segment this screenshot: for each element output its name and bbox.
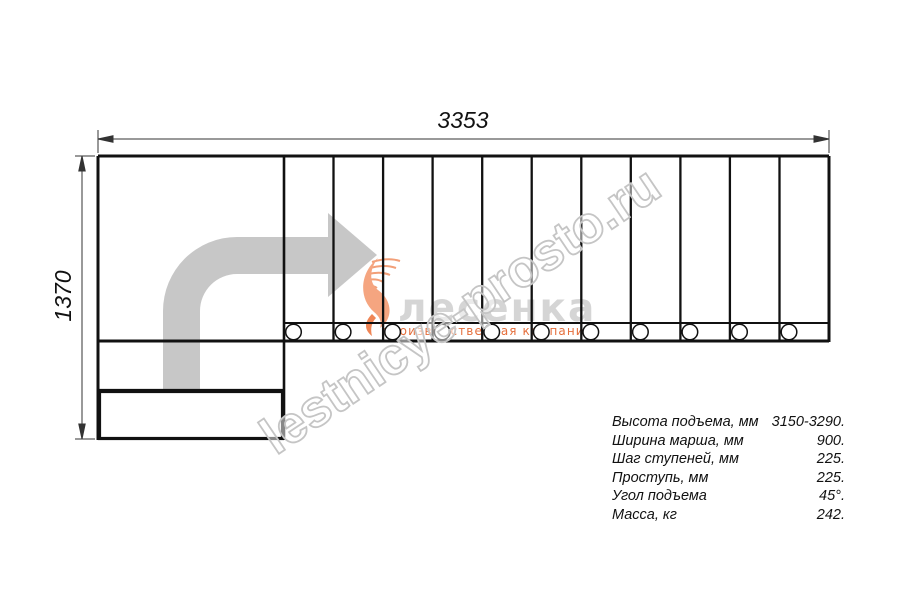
stair-drawing-page: лесенка производственная компания — [0, 0, 900, 600]
watermark: lestnicye-prosto.ru — [0, 0, 900, 600]
watermark-text: lestnicye-prosto.ru — [250, 156, 671, 466]
